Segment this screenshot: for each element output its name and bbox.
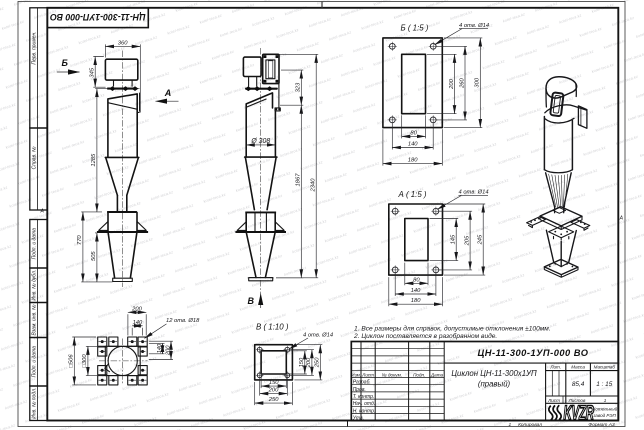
svg-text:345: 345: [90, 67, 96, 77]
svg-text:245: 245: [478, 234, 484, 245]
svg-text:1285: 1285: [91, 153, 97, 167]
svg-text:1: 1: [604, 398, 607, 403]
svg-text:Ø 308: Ø 308: [250, 138, 270, 145]
svg-text:Копировал: Копировал: [518, 422, 542, 428]
svg-text:□300: □300: [82, 354, 88, 368]
svg-text:1 : 15: 1 : 15: [596, 381, 612, 388]
svg-text:180: 180: [408, 158, 418, 164]
svg-text:140: 140: [157, 343, 163, 353]
svg-text:150: 150: [269, 380, 279, 386]
svg-text:140: 140: [133, 320, 143, 326]
svg-text:Формат А3: Формат А3: [588, 422, 615, 428]
svg-text:200: 200: [165, 345, 171, 356]
svg-text:Пров.: Пров.: [353, 387, 366, 393]
svg-text:Циклон ЦН-11-300х1УП: Циклон ЦН-11-300х1УП: [451, 369, 537, 378]
svg-text:2340: 2340: [311, 178, 317, 193]
svg-text:140: 140: [411, 288, 421, 294]
svg-text:85,4: 85,4: [572, 381, 585, 388]
svg-text:Н. контр.: Н. контр.: [353, 408, 376, 414]
svg-text:4 отв. Ø14: 4 отв. Ø14: [459, 190, 489, 196]
svg-text:250: 250: [268, 397, 279, 403]
svg-text:Котельный: Котельный: [593, 406, 618, 412]
svg-text:KVZR: KVZR: [564, 402, 595, 424]
svg-text:(правый): (правый): [478, 379, 511, 388]
svg-text:Лист: Лист: [547, 398, 560, 403]
svg-text:Б ( 1:5 ): Б ( 1:5 ): [401, 24, 429, 33]
svg-text:770: 770: [77, 235, 83, 245]
svg-text:4 отв. Ø14: 4 отв. Ø14: [303, 332, 333, 338]
svg-text:Масса: Масса: [571, 365, 585, 370]
svg-text:323: 323: [296, 82, 302, 92]
svg-text:□506: □506: [69, 354, 75, 368]
svg-text:4 отв. Ø14: 4 отв. Ø14: [459, 23, 489, 29]
svg-text:150: 150: [299, 357, 305, 367]
svg-text:2. Циклон поставляется в разо: 2. Циклон поставляется в разобранном вид…: [353, 332, 497, 340]
svg-text:12 отв. Ø18: 12 отв. Ø18: [166, 318, 200, 324]
svg-text:200: 200: [131, 306, 142, 312]
svg-text:Инв. № подл.: Инв. № подл.: [32, 388, 38, 419]
svg-text:А: А: [164, 88, 172, 98]
svg-text:Справ. №: Справ. №: [32, 146, 38, 169]
svg-text:Перв. примен.: Перв. примен.: [32, 31, 38, 64]
svg-text:Масштаб: Масштаб: [594, 365, 616, 370]
svg-text:завод РЭП: завод РЭП: [592, 413, 616, 418]
svg-text:Лист: Лист: [361, 373, 374, 378]
svg-text:ЦН-11-300-1УП-000 ВО: ЦН-11-300-1УП-000 ВО: [50, 12, 146, 22]
svg-text:№ докум.: № докум.: [382, 373, 402, 378]
svg-text:140: 140: [408, 142, 418, 148]
svg-text:1: 1: [509, 422, 512, 428]
svg-text:250: 250: [315, 357, 321, 368]
svg-text:ЦН-11-300-1УП-000 ВО: ЦН-11-300-1УП-000 ВО: [478, 348, 589, 358]
svg-text:А: А: [619, 216, 624, 222]
svg-text:80: 80: [413, 277, 420, 283]
svg-text:Подп. и дата: Подп. и дата: [32, 346, 38, 378]
svg-text:200: 200: [449, 78, 455, 89]
svg-text:Б: Б: [62, 58, 69, 68]
svg-text:В: В: [248, 296, 255, 306]
svg-text:Подп.: Подп.: [413, 373, 425, 378]
svg-text:200: 200: [306, 357, 312, 368]
svg-text:Лит.: Лит.: [549, 365, 561, 370]
svg-text:1867: 1867: [296, 173, 302, 187]
svg-text:300: 300: [475, 77, 481, 87]
svg-text:А ( 1:5 ): А ( 1:5 ): [398, 190, 427, 199]
svg-text:260: 260: [459, 77, 465, 88]
svg-text:Инв. № дубл.: Инв. № дубл.: [32, 270, 38, 301]
svg-text:Дата: Дата: [430, 373, 444, 378]
svg-text:200: 200: [268, 388, 279, 394]
svg-text:В ( 1:10 ): В ( 1:10 ): [256, 323, 289, 332]
svg-text:Изм.: Изм.: [351, 373, 361, 378]
svg-text:80: 80: [410, 130, 417, 136]
svg-text:180: 180: [411, 298, 421, 304]
svg-text:360: 360: [118, 41, 128, 47]
svg-text:Разраб.: Разраб.: [353, 380, 371, 386]
svg-text:505: 505: [91, 251, 97, 261]
svg-text:1. Все размеры для справок, д: 1. Все размеры для справок, допустимые о…: [354, 324, 551, 332]
svg-text:Взам. инв. №: Взам. инв. №: [32, 304, 38, 336]
svg-text:Т. контр.: Т. контр.: [353, 394, 375, 400]
svg-text:145: 145: [451, 234, 457, 244]
svg-text:Подп. и дата: Подп. и дата: [32, 228, 38, 260]
svg-text:А: А: [40, 209, 45, 215]
svg-text:Утв.: Утв.: [353, 415, 364, 421]
svg-text:Нач. отд.: Нач. отд.: [353, 401, 375, 407]
svg-text:205: 205: [464, 235, 470, 246]
